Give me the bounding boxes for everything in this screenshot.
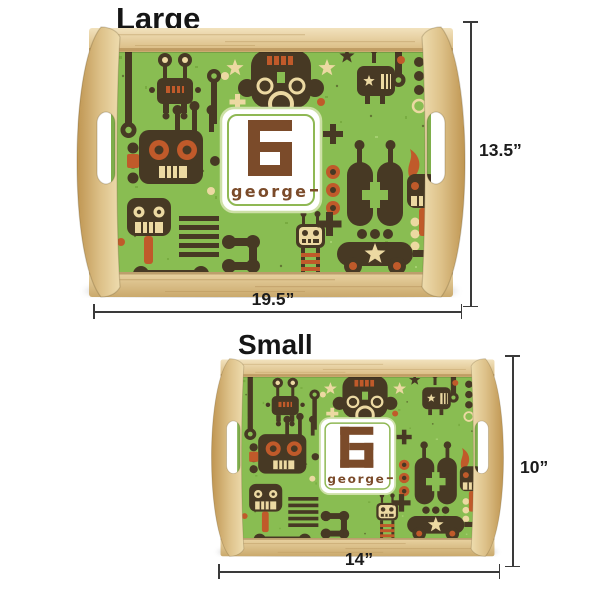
- tray-image-large: [75, 26, 467, 298]
- dimension-label-height-small: 10”: [520, 459, 548, 477]
- size-title-small: Small: [238, 331, 313, 359]
- dimension-line-height-small: [512, 355, 514, 567]
- dimension-label-height-large: 13.5”: [479, 142, 522, 160]
- dimension-line-height-large: [470, 21, 472, 307]
- dimension-label-width-small: 14”: [218, 551, 500, 569]
- dimension-label-width-large: 19.5”: [93, 291, 453, 309]
- dimension-line-width-small: [218, 571, 500, 573]
- dimension-cap: [461, 304, 463, 319]
- product-size-comparison: george: [0, 0, 600, 600]
- dimension-cap: [505, 355, 520, 357]
- dimension-cap: [505, 566, 520, 568]
- dimension-cap: [463, 306, 478, 308]
- dimension-cap: [463, 21, 478, 23]
- dimension-line-width-large: [93, 311, 462, 313]
- tray-image-small: [210, 358, 505, 557]
